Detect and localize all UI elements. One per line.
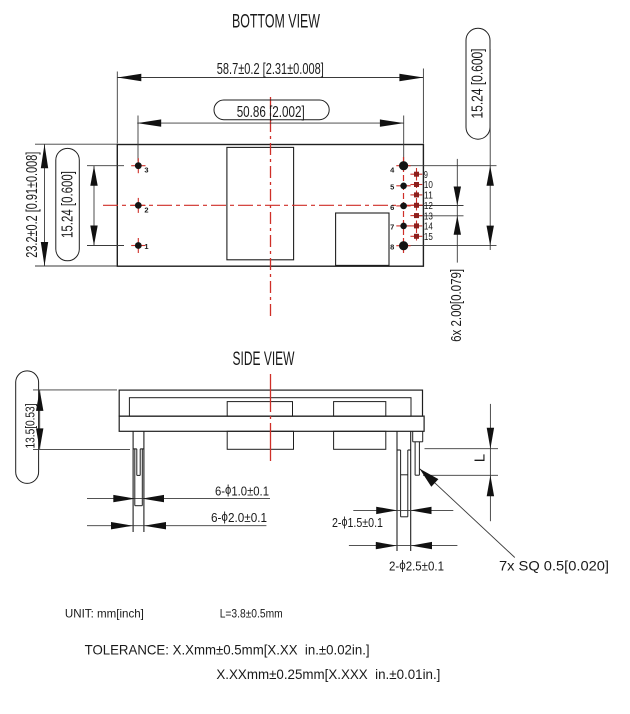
svg-text:15: 15 xyxy=(424,232,433,243)
svg-text:50.86 [2.002]: 50.86 [2.002] xyxy=(237,104,305,121)
svg-text:13.5[0.53]: 13.5[0.53] xyxy=(22,404,37,449)
svg-text:X.XXmm±0.25mm[X.XXX in.±0.01i: X.XXmm±0.25mm[X.XXX in.±0.01in.] xyxy=(216,666,440,682)
svg-text:5: 5 xyxy=(390,183,394,192)
svg-text:58.7±0.2 [2.31±0.008]: 58.7±0.2 [2.31±0.008] xyxy=(217,61,324,78)
svg-text:6: 6 xyxy=(390,203,394,212)
svg-text:4: 4 xyxy=(390,165,395,174)
svg-text:6-ϕ2.0±0.1: 6-ϕ2.0±0.1 xyxy=(211,510,267,525)
svg-text:23.2±0.2 [0.91±0.008]: 23.2±0.2 [0.91±0.008] xyxy=(24,152,41,258)
svg-text:15.24 [0.600]: 15.24 [0.600] xyxy=(470,49,487,119)
svg-text:12: 12 xyxy=(424,201,433,212)
svg-text:2-ϕ2.5±0.1: 2-ϕ2.5±0.1 xyxy=(389,558,444,573)
svg-text:L: L xyxy=(472,454,489,462)
svg-text:7x SQ 0.5[0.020]: 7x SQ 0.5[0.020] xyxy=(499,558,609,574)
svg-text:UNIT: mm[inch]: UNIT: mm[inch] xyxy=(65,607,144,621)
svg-text:TOLERANCE: X.Xmm±0.5mm[X.XX i: TOLERANCE: X.Xmm±0.5mm[X.XX in.±0.02in.] xyxy=(85,642,370,658)
svg-text:10: 10 xyxy=(424,180,433,191)
svg-text:3: 3 xyxy=(144,165,148,174)
svg-text:BOTTOM VIEW: BOTTOM VIEW xyxy=(232,11,320,33)
svg-text:SIDE VIEW: SIDE VIEW xyxy=(233,349,295,370)
svg-text:15.24 [0.600]: 15.24 [0.600] xyxy=(60,171,77,238)
svg-text:2: 2 xyxy=(144,206,148,215)
svg-text:13: 13 xyxy=(424,211,433,222)
svg-text:6-ϕ1.0±0.1: 6-ϕ1.0±0.1 xyxy=(215,483,269,498)
svg-text:7: 7 xyxy=(390,223,394,232)
svg-text:8: 8 xyxy=(390,242,394,251)
svg-text:1: 1 xyxy=(144,242,148,251)
svg-text:2-ϕ1.5±0.1: 2-ϕ1.5±0.1 xyxy=(332,515,383,530)
svg-text:6x 2.00[0.079]: 6x 2.00[0.079] xyxy=(448,269,465,342)
svg-text:L=3.8±0.5mm: L=3.8±0.5mm xyxy=(220,607,283,621)
